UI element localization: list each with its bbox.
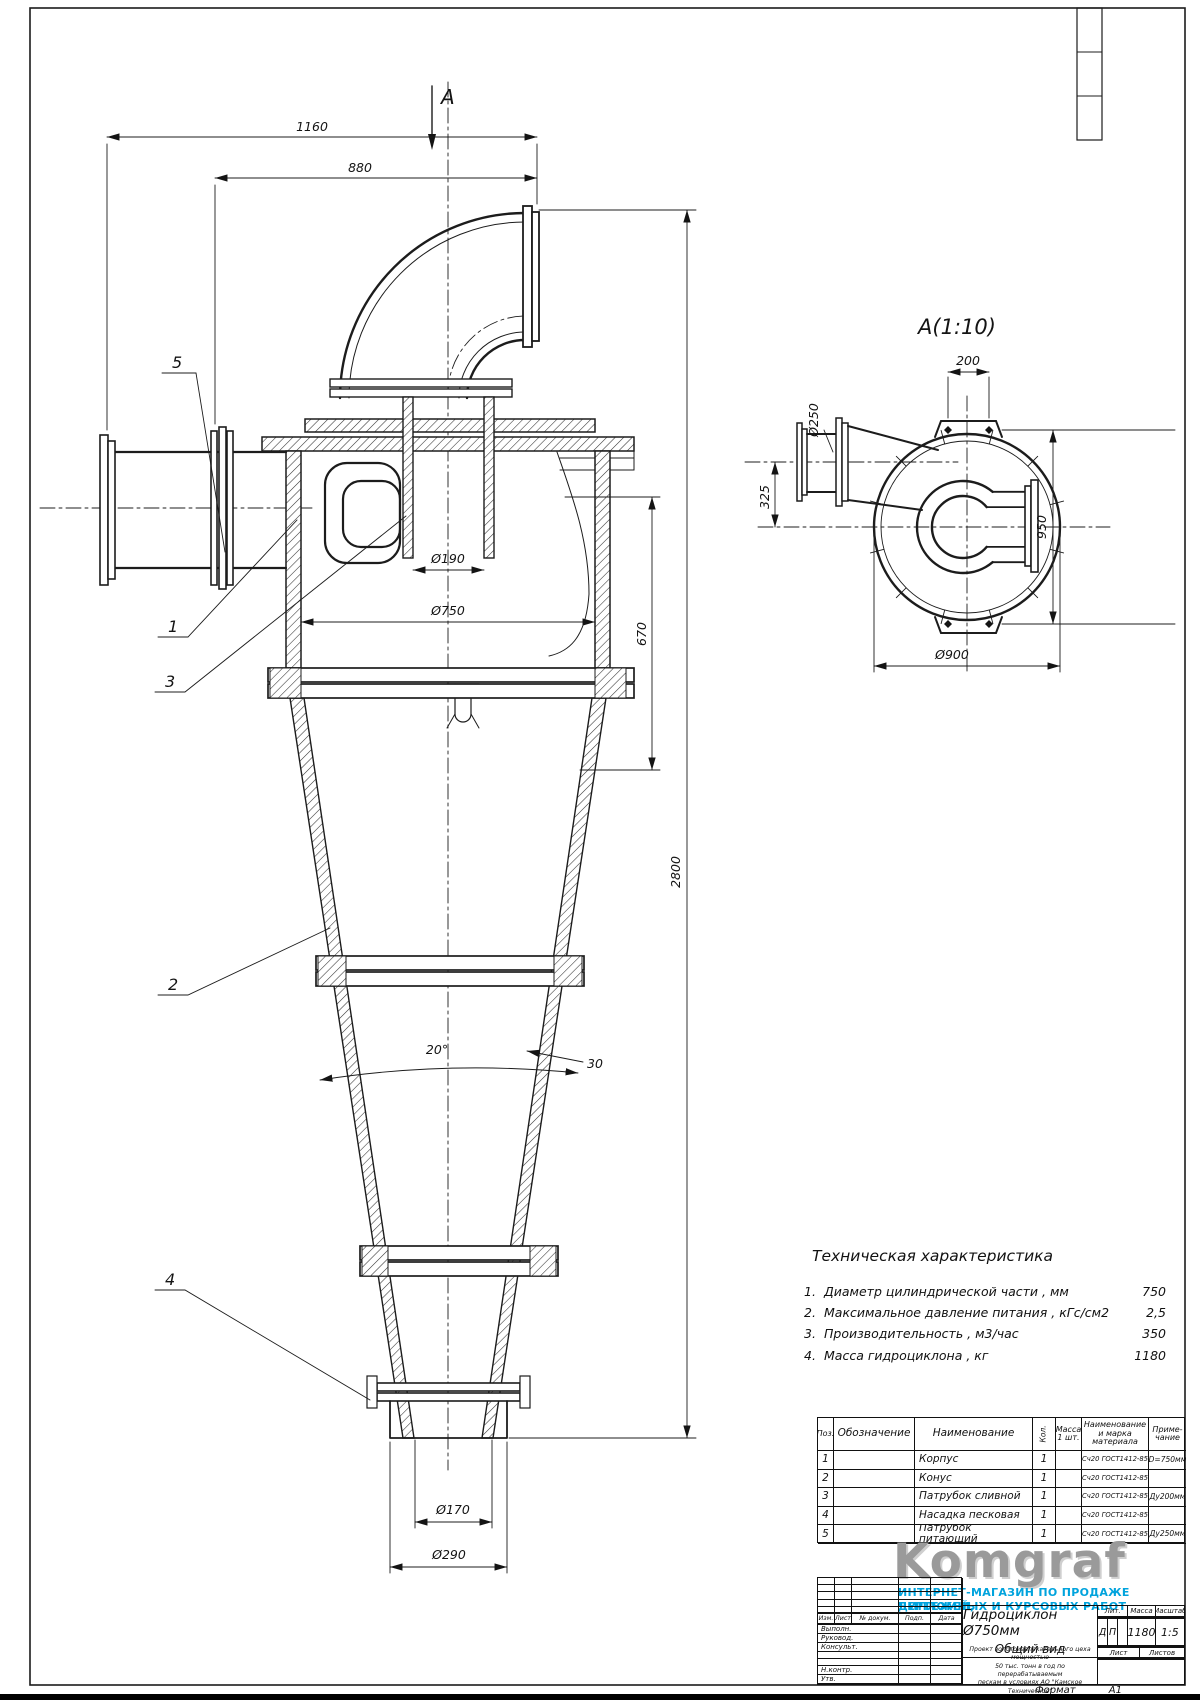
sig-label <box>818 1659 899 1666</box>
dim-d900: Ø900 <box>934 647 969 662</box>
tech-char-row: 3. Производительность , м3/час 350 <box>804 1326 1166 1341</box>
lit-value-p: П <box>1108 1619 1118 1646</box>
row-designation <box>834 1451 915 1470</box>
item-label: Масса гидроциклона , кг <box>824 1348 1134 1363</box>
row-note <box>1149 1470 1186 1489</box>
lit-value-d: Д <box>1098 1619 1108 1646</box>
section-view-title: А(1:10) <box>916 315 996 339</box>
item-label: Производительность , м3/час <box>824 1326 1142 1341</box>
sig-label: Руковод. <box>818 1634 899 1643</box>
item-value: 1180 <box>1134 1348 1166 1363</box>
item-number: 2. <box>804 1305 824 1320</box>
section-arrow <box>428 86 436 150</box>
sheet-label: Лист <box>1098 1648 1140 1658</box>
dim-950: 950 <box>1034 515 1049 539</box>
mass-label: Масса <box>1128 1606 1155 1617</box>
row-pos: 1 <box>818 1451 834 1470</box>
row-mass <box>1056 1470 1082 1489</box>
dim-670: 670 <box>634 622 649 646</box>
lit-mass-scale-values: Д П 1180 1:5 <box>1097 1618 1185 1647</box>
org-line-1: Проект золотоизвлекательного цеха мощнос… <box>963 1646 1097 1663</box>
elbow-flange <box>523 206 532 347</box>
sheets-label: Листов <box>1140 1648 1184 1658</box>
row-qty: 1 <box>1033 1507 1056 1526</box>
outlet-elbow <box>330 206 539 398</box>
rev-col-sign: Подп. <box>899 1614 931 1623</box>
sig-label: Консульт. <box>818 1643 899 1652</box>
parts-table: Поз. Обозначение Наименование Кол. Масса… <box>817 1417 1185 1543</box>
dim-d290: Ø290 <box>431 1547 466 1562</box>
callout-4: 4 <box>165 1270 175 1289</box>
dim-angle-20: 20° <box>426 1042 448 1057</box>
row-mass <box>1056 1451 1082 1470</box>
row-name: Конус <box>915 1470 1033 1489</box>
row-pos: 5 <box>818 1525 834 1544</box>
title-block-signature-rows: Выполн. Руковод. Консульт. Н.контр. Утв. <box>817 1624 962 1685</box>
col-header-designation: Обозначение <box>834 1418 915 1451</box>
rev-col-doc: № докум. <box>852 1614 899 1623</box>
sig-label <box>818 1652 899 1659</box>
corner-stamp-block <box>1077 8 1102 140</box>
dim-1160: 1160 <box>296 119 328 134</box>
rev-col-izm: Изм. <box>818 1614 835 1623</box>
sheet-value-cell <box>1097 1659 1185 1685</box>
tech-char-row: 2. Максимальное давление питания , кГс/с… <box>804 1305 1166 1320</box>
outlet-c-ring <box>917 480 1038 573</box>
dim-2800: 2800 <box>668 856 683 888</box>
row-qty: 1 <box>1033 1470 1056 1489</box>
row-name: Патрубок сливной <box>915 1488 1033 1507</box>
dim-d190: Ø190 <box>430 551 465 566</box>
sig-label: Выполн. <box>818 1625 899 1634</box>
sig-label: Н.контр. <box>818 1666 899 1675</box>
rev-col-date: Дата <box>931 1614 963 1623</box>
item-number: 4. <box>804 1348 824 1363</box>
row-name: Корпус <box>915 1451 1033 1470</box>
flange-joint-2 <box>316 956 584 986</box>
flange-joint-3 <box>360 1246 558 1276</box>
col-header-pos: Поз. <box>818 1418 834 1451</box>
item-value: 750 <box>1142 1284 1166 1299</box>
sheet-row: Лист Листов <box>1097 1647 1185 1659</box>
lit-label: Лит. <box>1098 1606 1128 1617</box>
row-name: Насадка песковая <box>915 1507 1033 1526</box>
scale-value: 1:5 <box>1156 1619 1184 1646</box>
dim-880: 880 <box>348 160 372 175</box>
row-material: Сч20 ГОСТ1412-85 <box>1082 1507 1149 1526</box>
row-material: Сч20 ГОСТ1412-85 <box>1082 1451 1149 1470</box>
section-view-a <box>775 372 1175 672</box>
cover-plates <box>262 419 634 470</box>
drawing-sheet: { "page": { "format_label": "Формат", "f… <box>0 0 1200 1700</box>
org-line-2: 50 тыс. тонн в год по перерабатываемым <box>963 1663 1097 1680</box>
dim-325: 325 <box>757 485 772 509</box>
col-header-qty: Кол. <box>1033 1418 1056 1451</box>
col-header-material: Наименование и марка материала <box>1082 1418 1149 1451</box>
row-designation <box>834 1507 915 1526</box>
row-pos: 4 <box>818 1507 834 1526</box>
org-text-cell: Проект золотоизвлекательного цеха мощнос… <box>962 1657 1098 1685</box>
row-designation <box>834 1488 915 1507</box>
row-material: Сч20 ГОСТ1412-85 <box>1082 1470 1149 1489</box>
arrow-head-icon <box>428 134 436 150</box>
flange-joint-1 <box>268 668 634 698</box>
row-note: Ду200мм <box>1149 1488 1186 1507</box>
scale-label: Масштаб <box>1156 1606 1184 1617</box>
sand-nozzle <box>367 1376 530 1438</box>
row-qty: 1 <box>1033 1488 1056 1507</box>
callout-1: 1 <box>168 617 178 636</box>
lit-mass-scale-header: Лит. Масса Масштаб <box>1097 1605 1185 1618</box>
dim-d750: Ø750 <box>430 603 465 618</box>
section-dimensions <box>775 372 1175 672</box>
row-material: Сч20 ГОСТ1412-85 <box>1082 1488 1149 1507</box>
dim-d170: Ø170 <box>435 1502 470 1517</box>
dim-d250: Ø250 <box>806 403 821 438</box>
tech-char-row: 4. Масса гидроциклона , кг 1180 <box>804 1348 1166 1363</box>
row-note: Ду250мм <box>1149 1525 1186 1544</box>
row-mass <box>1056 1488 1082 1507</box>
row-mass <box>1056 1507 1082 1526</box>
mass-value: 1180 <box>1128 1619 1155 1646</box>
item-value: 2,5 <box>1146 1305 1166 1320</box>
title-block-upper-grid <box>817 1577 962 1613</box>
row-pos: 3 <box>818 1488 834 1507</box>
tech-chars-title: Техническая характеристика <box>812 1247 1053 1265</box>
dim-30: 30 <box>587 1056 603 1071</box>
item-label: Диаметр цилиндрической части , мм <box>824 1284 1142 1299</box>
doc-title: Гидроциклон Ø750мм <box>963 1607 1097 1639</box>
rev-col-list: Лист <box>835 1614 852 1623</box>
col-header-note: Приме- чание <box>1149 1418 1186 1451</box>
callout-5: 5 <box>172 353 182 372</box>
col-header-name: Наименование <box>915 1418 1033 1451</box>
item-number: 1. <box>804 1284 824 1299</box>
row-note: D=750мм <box>1149 1451 1186 1470</box>
dim-200: 200 <box>956 353 980 368</box>
callout-3: 3 <box>165 672 175 691</box>
section-arrow-label: А <box>439 85 455 109</box>
item-label: Максимальное давление питания , кГс/см2 <box>824 1305 1146 1320</box>
item-value: 350 <box>1142 1326 1166 1341</box>
sig-label: Утв. <box>818 1675 899 1684</box>
title-block-rev-header: Изм. Лист № докум. Подп. Дата <box>817 1613 962 1624</box>
row-pos: 2 <box>818 1470 834 1489</box>
qty-label: Кол. <box>1040 1425 1048 1442</box>
row-note <box>1149 1507 1186 1526</box>
row-designation <box>834 1470 915 1489</box>
row-qty: 1 <box>1033 1451 1056 1470</box>
col-header-mass: Масса 1 шт. <box>1056 1418 1082 1451</box>
sheet-bottom-edge <box>0 1694 1200 1700</box>
item-number: 3. <box>804 1326 824 1341</box>
tech-char-row: 1. Диаметр цилиндрической части , мм 750 <box>804 1284 1166 1299</box>
callout-2: 2 <box>168 975 178 994</box>
